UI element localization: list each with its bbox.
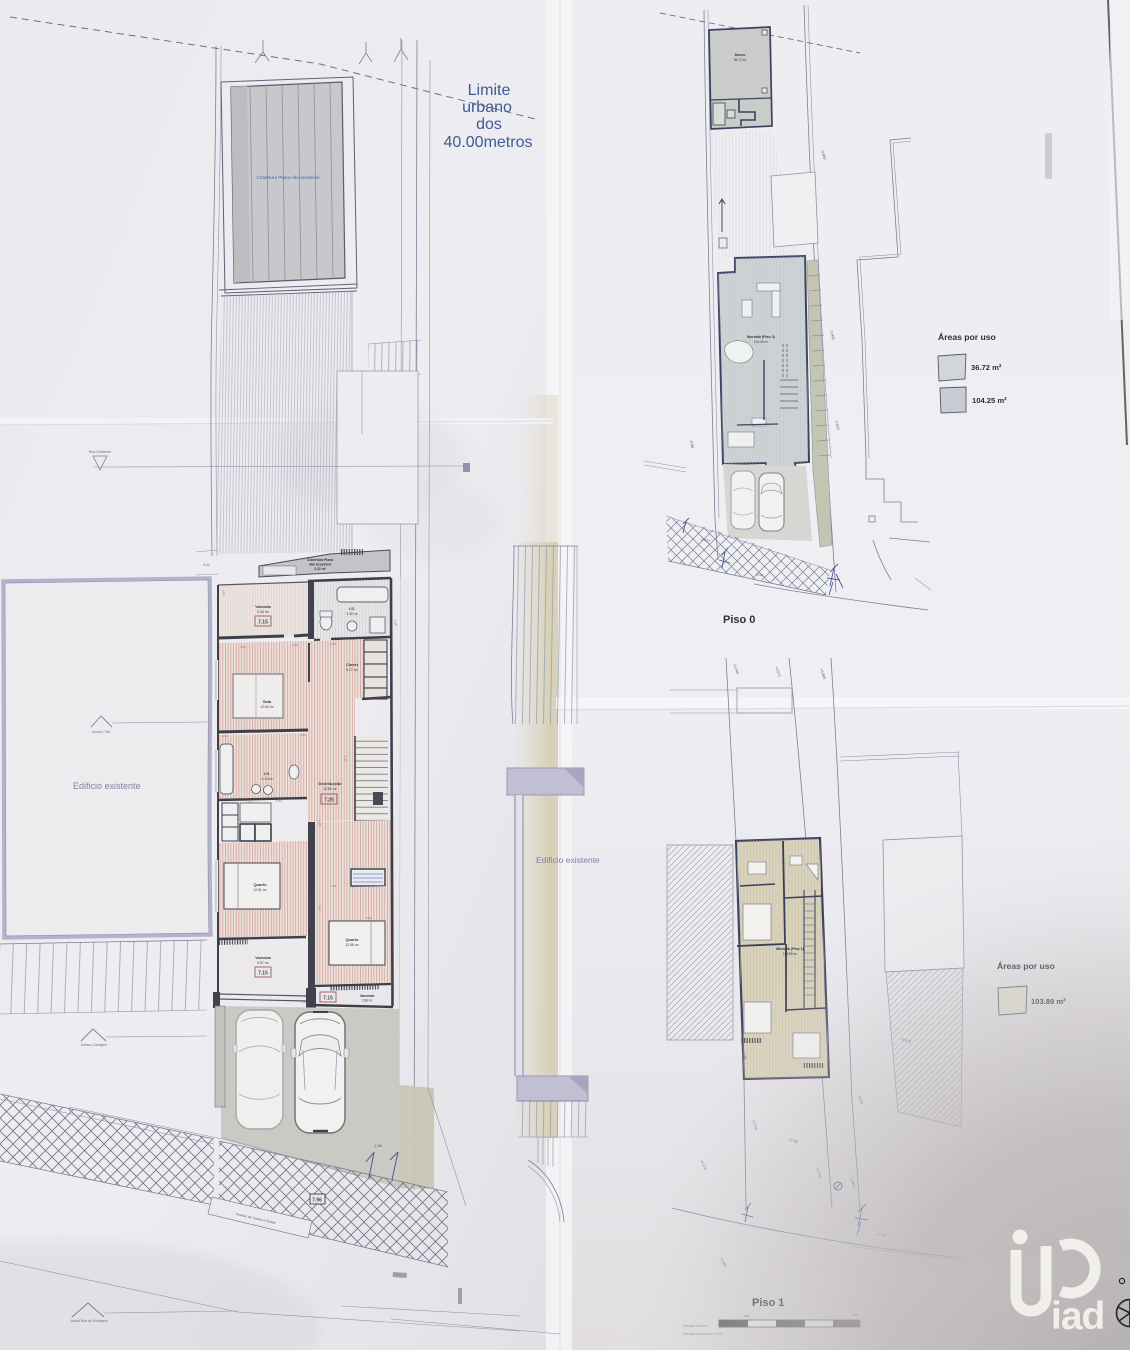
svg-text:36.72 m²: 36.72 m² (734, 58, 747, 62)
svg-text:13.82 m²: 13.82 m² (323, 787, 337, 791)
svg-text:não acessível: não acessível (309, 563, 331, 567)
svg-text:12.81 m²: 12.81 m² (253, 888, 267, 892)
svg-text:2.86: 2.86 (240, 938, 246, 942)
svg-text:Acesso Garagem: Acesso Garagem (81, 1043, 107, 1047)
svg-text:Varanda: Varanda (360, 994, 376, 998)
svg-text:7.15: 7.15 (258, 620, 268, 626)
svg-text:4.30 m²: 4.30 m² (346, 612, 358, 616)
svg-text:1.88: 1.88 (292, 643, 298, 647)
svg-text:Cobertura Plana: Cobertura Plana (307, 558, 333, 562)
svg-text:dos: dos (476, 116, 502, 133)
svg-text:I.S.: I.S. (349, 606, 355, 611)
svg-text:1.80: 1.80 (276, 799, 282, 803)
svg-text:1.04: 1.04 (246, 800, 252, 804)
svg-text:40.00metros: 40.00metros (444, 134, 533, 151)
svg-text:Varanda: Varanda (255, 955, 271, 960)
svg-text:Áreas por uso: Áreas por uso (938, 332, 996, 342)
svg-text:Anexo: Anexo (735, 53, 747, 57)
svg-text:8.04: 8.04 (203, 563, 210, 567)
svg-text:7.96: 7.96 (312, 1198, 322, 1204)
svg-text:12.84 m²: 12.84 m² (260, 705, 274, 709)
svg-text:1.48: 1.48 (374, 1143, 383, 1148)
svg-text:4.05: 4.05 (300, 733, 306, 737)
svg-text:Closet: Closet (346, 662, 359, 667)
svg-text:2.98: 2.98 (330, 642, 336, 646)
svg-text:Piso 0: Piso 0 (723, 614, 755, 626)
svg-text:2.80: 2.80 (366, 916, 372, 920)
svg-text:5.04: 5.04 (240, 645, 246, 649)
svg-text:36.72 m²: 36.72 m² (971, 363, 1002, 372)
svg-text:7.25: 7.25 (324, 798, 334, 804)
svg-text:5.27 m²: 5.27 m² (346, 668, 358, 672)
svg-text:7.15: 7.15 (258, 971, 268, 977)
svg-text:12.86 m²: 12.86 m² (345, 943, 359, 947)
svg-text:5.30 m²: 5.30 m² (257, 610, 269, 614)
svg-text:3.22 m²: 3.22 m² (314, 567, 327, 571)
svg-text:Sala: Sala (263, 699, 272, 704)
svg-text:4.13 m²: 4.13 m² (261, 777, 273, 781)
svg-text:104.25 m²: 104.25 m² (754, 340, 768, 344)
svg-text:Actual Rua de Rodagem: Actual Rua de Rodagem (71, 1319, 108, 1323)
svg-text:7.88 m²: 7.88 m² (362, 999, 373, 1003)
svg-text:0.60: 0.60 (222, 734, 228, 738)
svg-text:1.38: 1.38 (330, 884, 336, 888)
svg-text:Cobertura Plana não acessível: Cobertura Plana não acessível (257, 175, 320, 180)
svg-text:Varanda: Varanda (255, 604, 271, 609)
svg-text:Quarto: Quarto (253, 882, 267, 887)
svg-text:Edificio existente: Edificio existente (73, 781, 141, 791)
svg-text:5.57 m²: 5.57 m² (257, 961, 269, 965)
svg-text:Distribuição: Distribuição (318, 781, 342, 786)
svg-text:Edificio existente: Edificio existente (536, 855, 600, 865)
svg-text:iad: iad (1051, 1295, 1104, 1338)
svg-text:Rua Existente: Rua Existente (89, 450, 111, 454)
svg-text:Quarto: Quarto (345, 937, 359, 942)
svg-text:104.25 m²: 104.25 m² (972, 396, 1007, 405)
svg-text:urbano: urbano (462, 99, 512, 116)
svg-text:Limite: Limite (468, 82, 511, 99)
svg-text:Moradia (Piso 0): Moradia (Piso 0) (747, 335, 776, 339)
svg-text:7.15: 7.15 (323, 996, 333, 1002)
svg-text:I.S.: I.S. (264, 771, 270, 776)
svg-text:cércea 7.5m: cércea 7.5m (92, 730, 111, 734)
